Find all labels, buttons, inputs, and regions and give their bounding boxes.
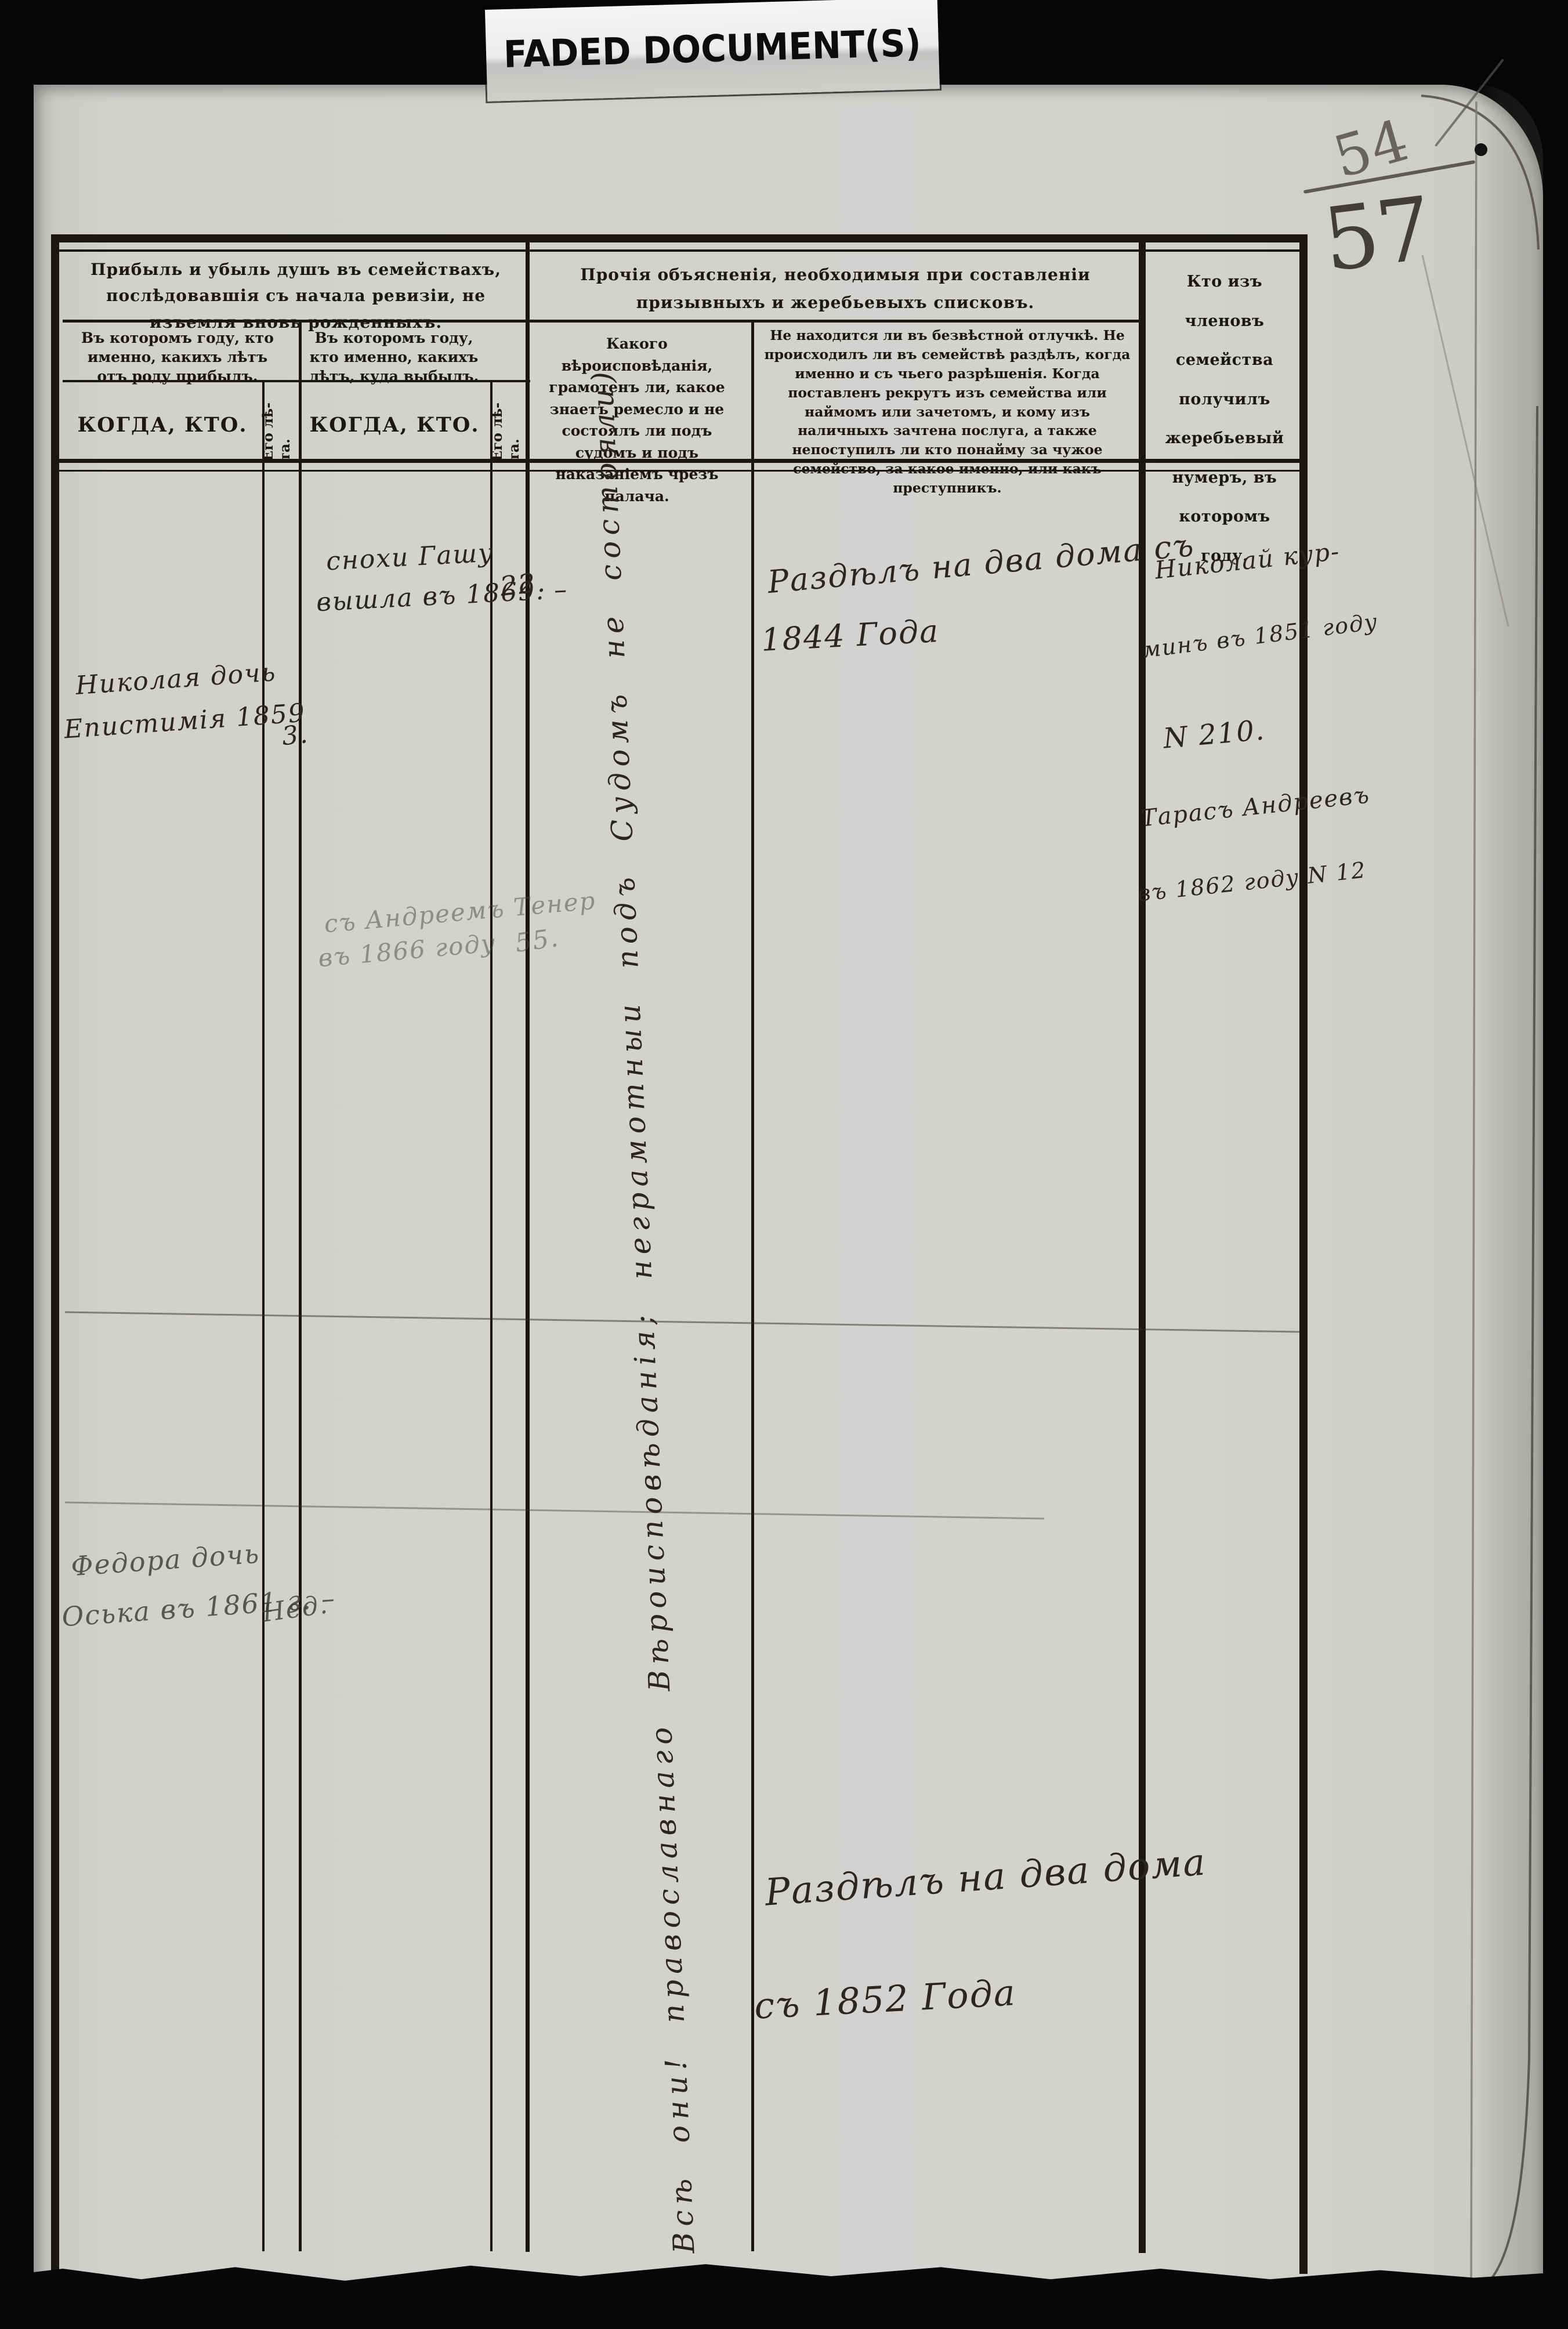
subheader-arrived: Въ которомъ году, кто именно, какихъ лѣт… [71,328,284,386]
entry-arrived1-age: 3. [280,719,310,752]
table-border-top-inner [51,249,1308,252]
column-line-age-departed [490,380,493,2251]
entry-departed2-age: 55. [513,923,561,958]
page-number: 57 [1318,179,1436,292]
subheader-absence: Не находится ли въ безвѣстной отлучкѣ. Н… [761,326,1134,498]
entry-departed1-age: 22. [498,566,547,602]
age-label-line2: та. [277,380,294,461]
column-line-faith-absence [751,320,754,2251]
page-edge-shading [1476,85,1543,2289]
age-label-line1: Его лѣ- [260,380,277,461]
age-label-line2: та. [506,380,523,461]
subheader-faith: Какого вѣроисповѣданія, грамотенъ ли, ка… [538,333,736,507]
age-label-arrived: Его лѣ- та. [260,380,300,461]
table-border-top [51,234,1308,242]
when-who-label-departed: КОГДА, КТО. [299,413,490,437]
subheader-departed: Въ которомъ году, кто именно, какихъ лѣт… [307,328,480,386]
column-line-arrived-departed [299,320,302,2251]
header-other-explanations: Прочія объясненія, необходимыя при соста… [545,261,1125,316]
header-arrivals-departures: Прибыль и убыль душъ въ семействахъ, пос… [73,256,519,335]
column-line-group-left-middle [526,234,530,2252]
faded-document-banner: FADED DOCUMENT(S) [485,0,940,102]
age-label-departed: Его лѣ- та. [489,380,530,461]
scanned-document-page: FADED DOCUMENT(S) 54 57 Прибыль и убыль … [0,0,1568,2329]
banner-label: FADED DOCUMENT(S) [503,22,921,77]
table-border-left [51,234,59,2274]
age-label-line1: Его лѣ- [489,380,506,461]
when-who-label-arrived: КОГДА, КТО. [63,413,262,437]
